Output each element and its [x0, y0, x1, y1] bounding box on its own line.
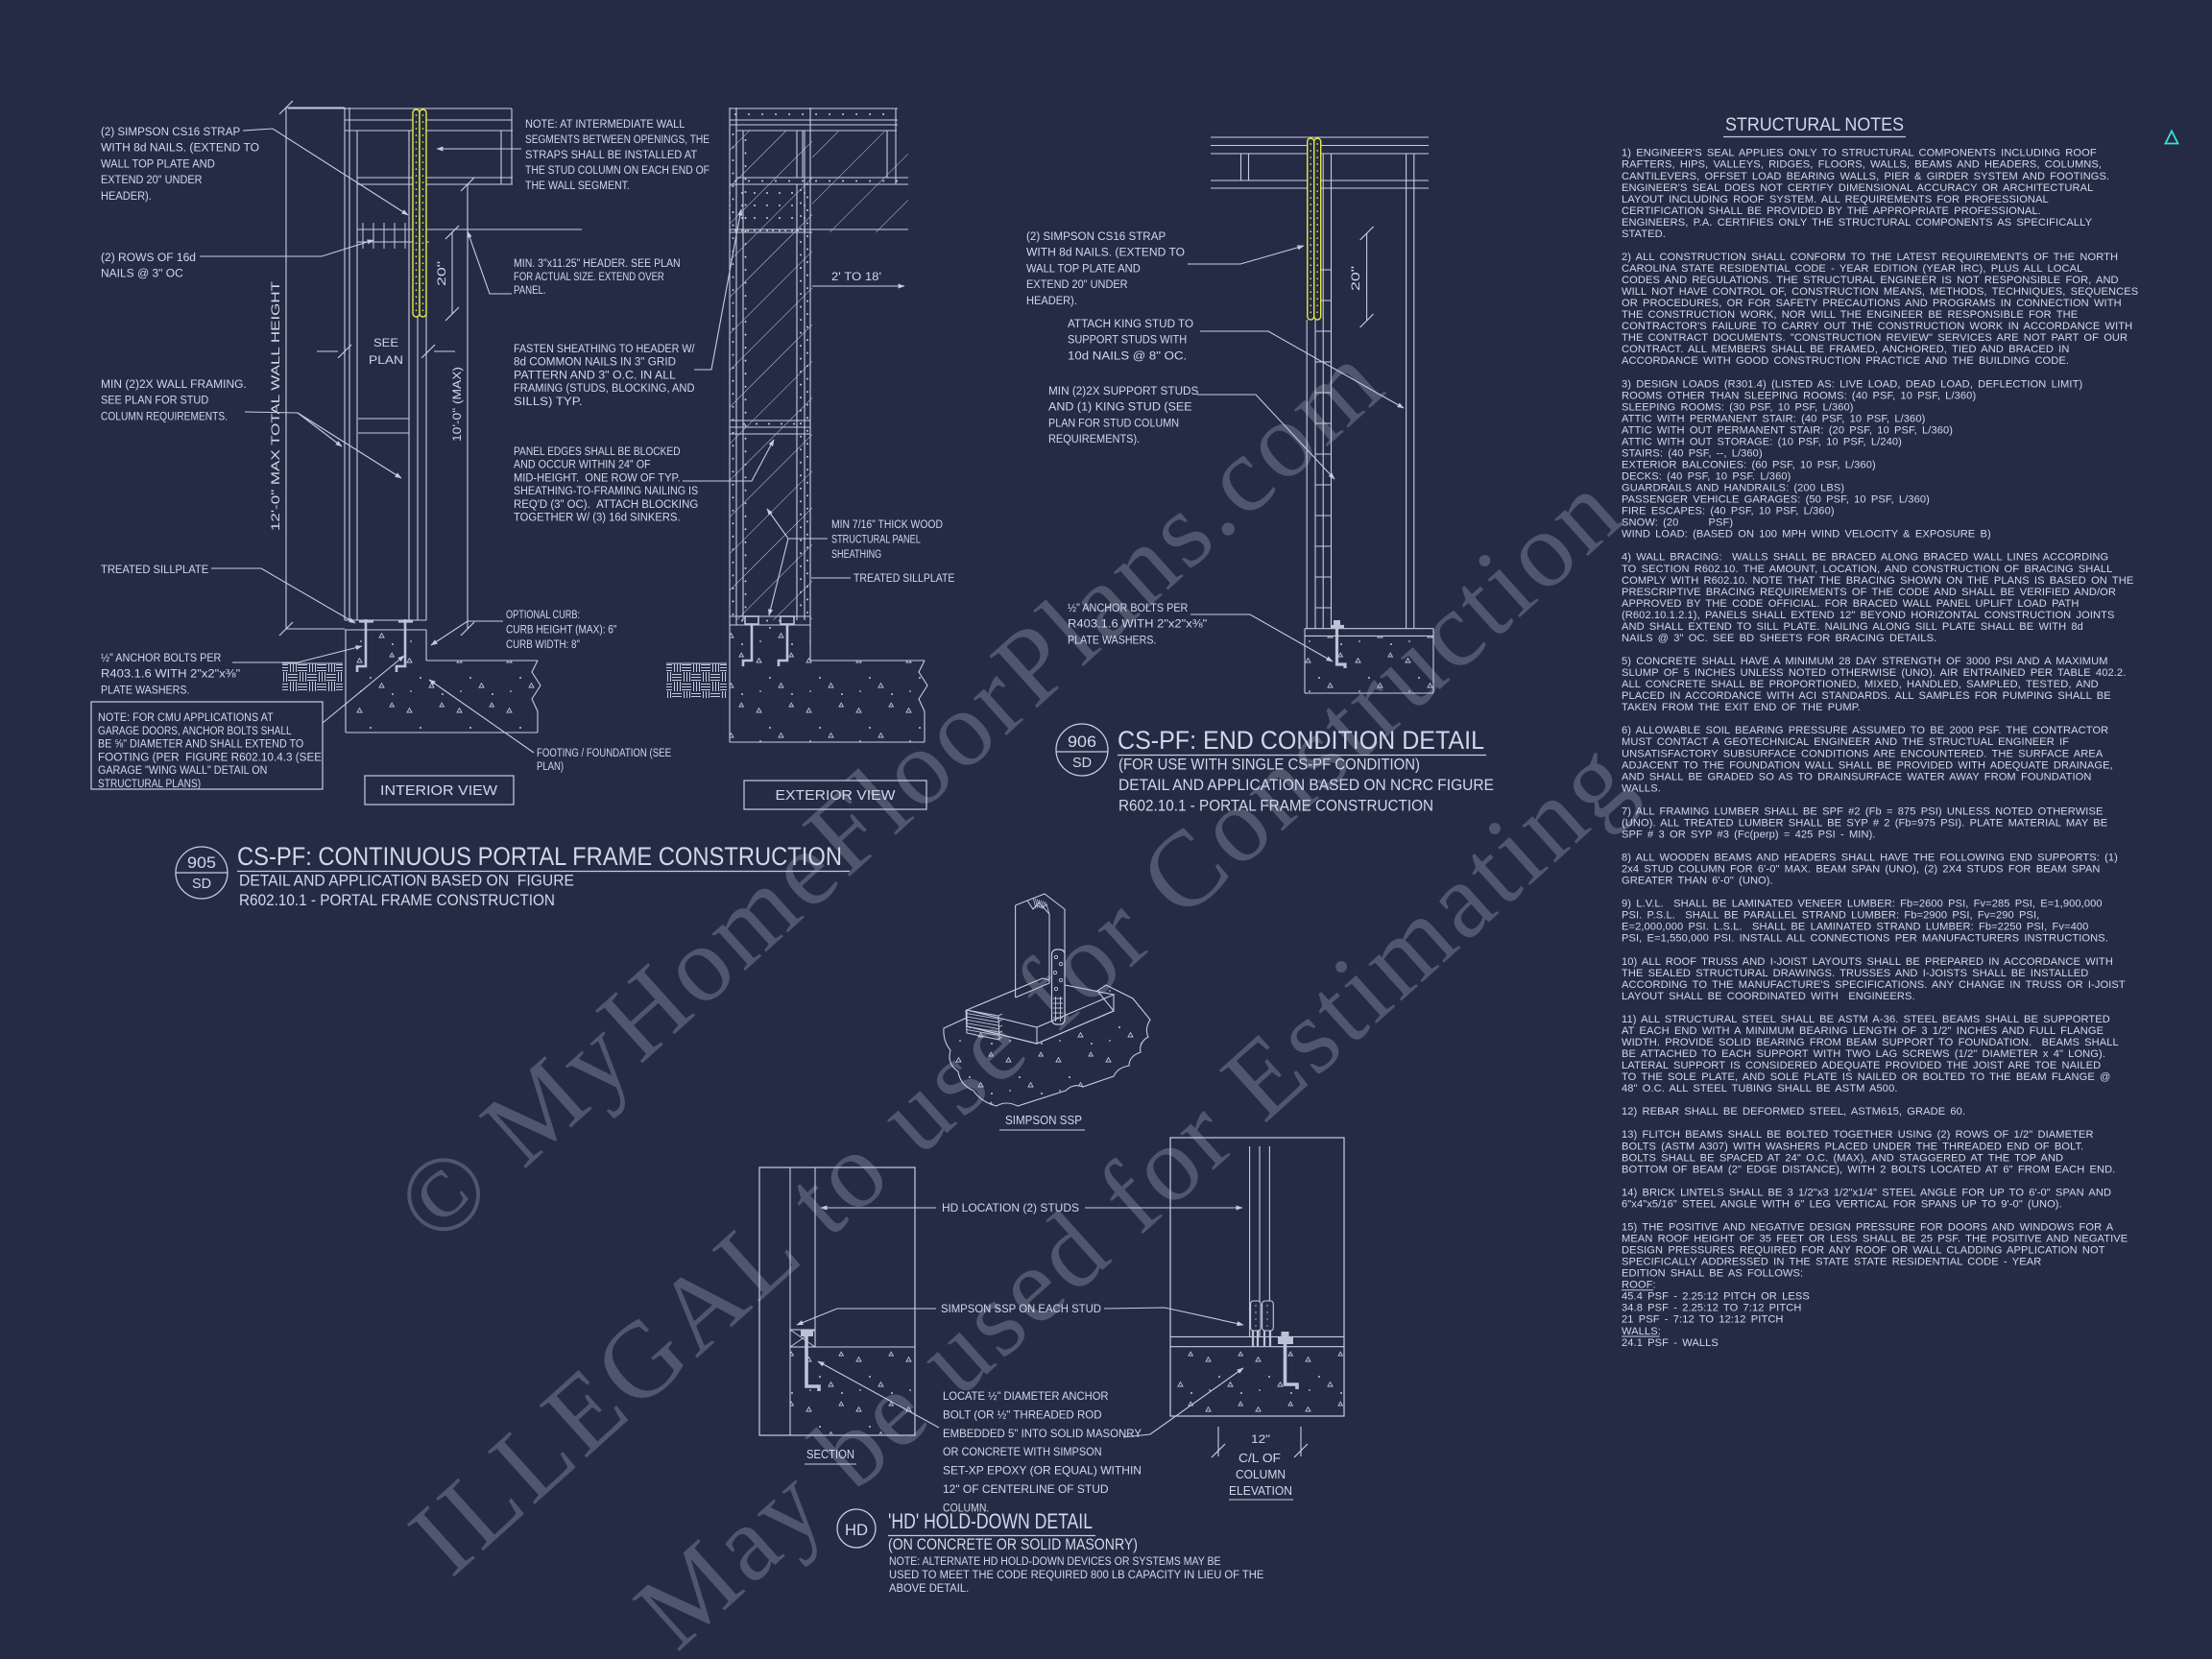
svg-text:EXTERIOR BALCONIES: (60 PSF, 1: EXTERIOR BALCONIES: (60 PSF, 10 PSF, L/3… — [1622, 460, 1876, 471]
svg-text:14) BRICK LINTELS SHALL BE 3 1: 14) BRICK LINTELS SHALL BE 3 1/2"x3 1/2"… — [1622, 1187, 2111, 1198]
svg-text:FOOTING (PER FIGURE R602.10.4: FOOTING (PER FIGURE R602.10.4.3 (SEE — [98, 752, 322, 763]
svg-text:FIRE ESCAPES: (40 PSF, 10 PSF,: FIRE ESCAPES: (40 PSF, 10 PSF, L/360) — [1622, 506, 1835, 517]
svg-text:AND OCCUR WITHIN 24" OF: AND OCCUR WITHIN 24" OF — [514, 460, 651, 471]
svg-text:PASSENGER VEHICLE GARAGES: (50: PASSENGER VEHICLE GARAGES: (50 PSF, 10 P… — [1622, 494, 1930, 506]
svg-text:ROOF:: ROOF: — [1622, 1280, 1656, 1291]
svg-text:PLAN): PLAN) — [537, 761, 564, 773]
svg-text:20": 20" — [435, 261, 448, 286]
svg-text:SILLS) TYP.: SILLS) TYP. — [514, 397, 583, 408]
svg-text:MID-HEIGHT. ONE ROW OF TYP.: MID-HEIGHT. ONE ROW OF TYP. — [514, 472, 681, 484]
svg-text:PANEL EDGES SHALL BE BLOCKED: PANEL EDGES SHALL BE BLOCKED — [514, 446, 681, 458]
svg-text:CERTIFICATION SHALL BE PROVIDE: CERTIFICATION SHALL BE PROVIDED BY THE A… — [1622, 205, 2041, 217]
svg-text:INTERIOR VIEW: INTERIOR VIEW — [380, 782, 498, 799]
svg-text:CONTRACTOR'S FAILURE TO CARRY: CONTRACTOR'S FAILURE TO CARRY OUT THE CO… — [1622, 321, 2132, 332]
svg-text:15) THE POSITIVE AND NEGATIVE: 15) THE POSITIVE AND NEGATIVE DESIGN PRE… — [1622, 1222, 2114, 1234]
svg-text:PSI, E=1,550,000 PSI. INSTALL: PSI, E=1,550,000 PSI. INSTALL ALL CONNEC… — [1622, 933, 2108, 945]
svg-text:PLATE WASHERS.: PLATE WASHERS. — [101, 685, 189, 696]
svg-text:NOTE: AT INTERMEDIATE WALL: NOTE: AT INTERMEDIATE WALL — [525, 119, 685, 131]
svg-text:LAYOUT INCLUDING ROOF SYSTEM.: LAYOUT INCLUDING ROOF SYSTEM. ALL REQUIR… — [1622, 194, 2049, 205]
svg-text:COMPLY WITH R602.10. NOTE THAT: COMPLY WITH R602.10. NOTE THAT THE BRACI… — [1622, 575, 2133, 587]
svg-text:STRUCTURAL NOTES: STRUCTURAL NOTES — [1725, 115, 1904, 135]
svg-text:R602.10.1 - PORTAL FRAME CONST: R602.10.1 - PORTAL FRAME CONSTRUCTION — [1118, 798, 1433, 815]
svg-text:FOOTING / FOUNDATION (SEE: FOOTING / FOUNDATION (SEE — [537, 748, 671, 759]
svg-text:TREATED SILLPLATE: TREATED SILLPLATE — [101, 565, 209, 576]
svg-text:EXTERIOR VIEW: EXTERIOR VIEW — [776, 787, 897, 804]
svg-text:COLUMN: COLUMN — [1236, 1468, 1286, 1481]
svg-text:ATTIC WITH PERMANENT STAIR: (4: ATTIC WITH PERMANENT STAIR: (40 PSF, 10 … — [1622, 413, 1925, 424]
svg-text:ENGINEER'S SEAL DOES NOT CERTI: ENGINEER'S SEAL DOES NOT CERTIFY DIMENSI… — [1622, 182, 2093, 194]
svg-text:R403.1.6 WITH 2"x2"x⅜": R403.1.6 WITH 2"x2"x⅜" — [1068, 619, 1207, 631]
svg-text:HD: HD — [845, 1521, 868, 1539]
svg-text:LATERAL SUPPORT IS CONSIDERED: LATERAL SUPPORT IS CONSIDERED ADEQUATE P… — [1622, 1060, 2101, 1071]
svg-text:ENGINEERS, P.A. CERTIFIES ONLY: ENGINEERS, P.A. CERTIFIES ONLY THE STRUC… — [1622, 217, 2093, 228]
svg-text:ACCORDING TO THE MANUFACTURE'S: ACCORDING TO THE MANUFACTURE'S SPECIFICA… — [1622, 979, 2126, 991]
svg-text:STRUCTURAL PLANS): STRUCTURAL PLANS) — [98, 779, 201, 790]
svg-text:LAYOUT SHALL BE COORDINATED WI: LAYOUT SHALL BE COORDINATED WITH ENGINEE… — [1622, 991, 1915, 1002]
svg-text:(2) ROWS OF 16d: (2) ROWS OF 16d — [101, 252, 196, 264]
svg-text:SECTION: SECTION — [806, 1447, 854, 1461]
svg-text:SD: SD — [1072, 755, 1092, 771]
svg-text:20": 20" — [1349, 266, 1362, 291]
svg-text:(2) SIMPSON CS16 STRAP: (2) SIMPSON CS16 STRAP — [1026, 231, 1166, 243]
svg-text:PLATE WASHERS.: PLATE WASHERS. — [1068, 635, 1156, 646]
svg-text:TAKEN FROM THE EXIT END OF THE: TAKEN FROM THE EXIT END OF THE PUMP. — [1622, 702, 1861, 713]
svg-text:SEE PLAN FOR STUD: SEE PLAN FOR STUD — [101, 396, 208, 407]
svg-text:10'-0" (MAX): 10'-0" (MAX) — [450, 367, 464, 442]
svg-text:MIN (2)2X SUPPORT STUDS: MIN (2)2X SUPPORT STUDS — [1048, 386, 1199, 397]
svg-text:12": 12" — [1251, 1432, 1270, 1446]
svg-text:SIMPSON SSP ON EACH STUD: SIMPSON SSP ON EACH STUD — [941, 1302, 1101, 1315]
svg-text:BE ⅝" DIAMETER AND SHALL EXTEN: BE ⅝" DIAMETER AND SHALL EXTEND TO — [98, 739, 303, 751]
svg-text:PLACED IN ACCORDANCE WITH ACI: PLACED IN ACCORDANCE WITH ACI STANDARDS.… — [1622, 690, 2111, 702]
svg-text:REQ'D (3" OC). ATTACH BLOCKIN: REQ'D (3" OC). ATTACH BLOCKING — [514, 499, 698, 511]
svg-text:NAILS @ 3" OC: NAILS @ 3" OC — [101, 269, 183, 280]
svg-text:ATTACH KING STUD TO: ATTACH KING STUD TO — [1068, 319, 1193, 330]
svg-text:7) ALL FRAMING LUMBER SHALL BE: 7) ALL FRAMING LUMBER SHALL BE SPF #2 (F… — [1622, 805, 2103, 817]
svg-text:APPROVED BY THE CODE OFFICIAL.: APPROVED BY THE CODE OFFICIAL. FOR BRACE… — [1622, 598, 2079, 610]
svg-text:SEGMENTS BETWEEN OPENINGS, THE: SEGMENTS BETWEEN OPENINGS, THE — [525, 134, 709, 146]
svg-text:BOLTS (ASTM A307) WITH WASHERS: BOLTS (ASTM A307) WITH WASHERS PLACED UN… — [1622, 1141, 2083, 1152]
svg-text:FASTEN SHEATHING TO HEADER W/: FASTEN SHEATHING TO HEADER W/ — [514, 344, 695, 355]
svg-text:GARAGE DOORS, ANCHOR BOLTS SHA: GARAGE DOORS, ANCHOR BOLTS SHALL — [98, 726, 292, 737]
svg-text:AND (1) KING STUD (SEE: AND (1) KING STUD (SEE — [1048, 402, 1192, 414]
svg-text:THE STUD COLUMN ON EACH END OF: THE STUD COLUMN ON EACH END OF — [525, 165, 709, 177]
svg-text:SLUMP OF 5 INCHES UNLESS NOTED: SLUMP OF 5 INCHES UNLESS NOTED OTHERWISE… — [1622, 667, 2126, 679]
svg-text:12) REBAR SHALL BE DEFORMED ST: 12) REBAR SHALL BE DEFORMED STEEL, ASTM6… — [1622, 1106, 1965, 1118]
svg-text:24.1 PSF - WALLS: 24.1 PSF - WALLS — [1622, 1337, 1719, 1349]
svg-text:OPTIONAL CURB:: OPTIONAL CURB: — [506, 610, 580, 621]
svg-text:THE SEALED STRUCTURAL DRAWINGS: THE SEALED STRUCTURAL DRAWINGS. TRUSSES … — [1622, 968, 2088, 979]
svg-text:HEADER).: HEADER). — [1026, 296, 1077, 307]
svg-text:C/L OF: C/L OF — [1238, 1452, 1281, 1465]
svg-text:BE ATTACHED TO EACH SUPPORT WI: BE ATTACHED TO EACH SUPPORT WITH TWO LAG… — [1622, 1048, 2105, 1060]
svg-text:SEE: SEE — [373, 336, 398, 349]
svg-text:CANTILEVERS, OFFSET LOAD BEARI: CANTILEVERS, OFFSET LOAD BEARING WALLS, … — [1622, 171, 2109, 182]
svg-text:BOTTOM OF BEAM (2" EDGE DISTAN: BOTTOM OF BEAM (2" EDGE DISTANCE), WITH … — [1622, 1164, 2115, 1175]
svg-text:SLEEPING ROOMS: (30 PSF, 10 PS: SLEEPING ROOMS: (30 PSF, 10 PSF, L/360) — [1622, 401, 1854, 413]
svg-text:AT EACH END WITH A MINIMUM BEA: AT EACH END WITH A MINIMUM BEARING LENGT… — [1622, 1025, 2104, 1037]
svg-text:905: 905 — [187, 854, 216, 872]
svg-text:8d COMMON NAILS IN 3" GRID: 8d COMMON NAILS IN 3" GRID — [514, 357, 676, 369]
svg-text:WALL TOP PLATE AND: WALL TOP PLATE AND — [101, 158, 215, 170]
svg-text:GARAGE "WING WALL" DETAIL ON: GARAGE "WING WALL" DETAIL ON — [98, 765, 267, 777]
svg-text:MIN. 3"x11.25" HEADER. SEE PLA: MIN. 3"x11.25" HEADER. SEE PLAN — [514, 258, 681, 270]
svg-text:1) ENGINEER'S SEAL APPLIES ONL: 1) ENGINEER'S SEAL APPLIES ONLY TO STRUC… — [1622, 148, 2097, 159]
svg-text:12" OF CENTERLINE OF STUD: 12" OF CENTERLINE OF STUD — [943, 1482, 1109, 1496]
svg-text:OR CONCRETE WITH SIMPSON: OR CONCRETE WITH SIMPSON — [943, 1445, 1102, 1458]
svg-text:11) ALL STRUCTURAL STEEL SHALL: 11) ALL STRUCTURAL STEEL SHALL BE ASTM A… — [1622, 1014, 2110, 1025]
svg-text:'HD' HOLD-DOWN DETAIL: 'HD' HOLD-DOWN DETAIL — [888, 1509, 1093, 1533]
svg-text:NAILS @ 3" OC. SEE BD SHEETS F: NAILS @ 3" OC. SEE BD SHEETS FOR BRACING… — [1622, 633, 1936, 644]
svg-text:TREATED SILLPLATE: TREATED SILLPLATE — [854, 573, 955, 585]
svg-text:ATTIC WITH OUT PERMANENT STAIR: ATTIC WITH OUT PERMANENT STAIR: (20 PSF,… — [1622, 424, 1953, 436]
svg-text:6) ALLOWABLE SOIL BEARING PRES: 6) ALLOWABLE SOIL BEARING PRESSURE ASSUM… — [1622, 725, 2108, 736]
svg-text:MIN (2)2X WALL FRAMING.: MIN (2)2X WALL FRAMING. — [101, 379, 247, 391]
svg-text:WITH 8d NAILS. (EXTEND TO: WITH 8d NAILS. (EXTEND TO — [101, 143, 259, 155]
svg-text:CS-PF: CONTINUOUS PORTAL FRAME: CS-PF: CONTINUOUS PORTAL FRAME CONSTRUCT… — [237, 842, 842, 871]
svg-text:STRAPS SHALL BE INSTALLED AT: STRAPS SHALL BE INSTALLED AT — [525, 150, 697, 161]
svg-text:ADJACENT TO THE FOUNDATION WAL: ADJACENT TO THE FOUNDATION WALL SHALL BE… — [1622, 759, 2113, 771]
svg-text:DESIGN PRESSURES REQUIRED FOR: DESIGN PRESSURES REQUIRED FOR ANY ROOF O… — [1622, 1245, 2105, 1257]
svg-text:CS-PF: END CONDITION DETAIL: CS-PF: END CONDITION DETAIL — [1118, 726, 1484, 755]
svg-text:WALL TOP PLATE AND: WALL TOP PLATE AND — [1026, 263, 1141, 275]
svg-text:R403.1.6 WITH 2"x2"x⅜": R403.1.6 WITH 2"x2"x⅜" — [101, 669, 240, 681]
svg-text:(2) SIMPSON CS16 STRAP: (2) SIMPSON CS16 STRAP — [101, 127, 241, 138]
svg-text:UNSATISFACTORY SUBSURFACE COND: UNSATISFACTORY SUBSURFACE CONDITIONS ARE… — [1622, 748, 2104, 759]
svg-text:(ON CONCRETE OR SOLID MASONRY): (ON CONCRETE OR SOLID MASONRY) — [888, 1536, 1138, 1553]
svg-text:THE CONSTRUCTION WORK, NOR WIL: THE CONSTRUCTION WORK, NOR WILL THE ENGI… — [1622, 309, 2078, 321]
svg-text:SHEATHING: SHEATHING — [831, 549, 881, 561]
svg-text:10) ALL ROOF TRUSS AND I-JOIST: 10) ALL ROOF TRUSS AND I-JOIST LAYOUTS S… — [1622, 956, 2113, 968]
svg-text:(R602.10.1.2.1), PANELS SHALL: (R602.10.1.2.1), PANELS SHALL EXTEND 12"… — [1622, 610, 2115, 621]
svg-text:THE CONTRACT DOCUMENTS. "CONST: THE CONTRACT DOCUMENTS. "CONSTRUCTION RE… — [1622, 332, 2128, 344]
svg-text:WIDTH. PROVIDE SOLID BEARING F: WIDTH. PROVIDE SOLID BEARING FROM BEAM S… — [1622, 1037, 2119, 1048]
svg-text:13) FLITCH BEAMS SHALL BE BOLT: 13) FLITCH BEAMS SHALL BE BOLTED TOGETHE… — [1622, 1129, 2094, 1141]
svg-text:8) ALL WOODEN BEAMS AND HEADER: 8) ALL WOODEN BEAMS AND HEADERS SHALL HA… — [1622, 853, 2118, 864]
svg-text:CAROLINA STATE RESIDENTIAL COD: CAROLINA STATE RESIDENTIAL CODE - YEAR E… — [1622, 263, 2082, 275]
svg-text:6"x4"x5/16" STEEL ANGLE WITH 6: 6"x4"x5/16" STEEL ANGLE WITH 6" LEG VERT… — [1622, 1198, 2062, 1210]
svg-text:LOCATE ½" DIAMETER ANCHOR: LOCATE ½" DIAMETER ANCHOR — [943, 1389, 1109, 1403]
svg-text:PSI. P.S.L. SHALL BE PARALLEL: PSI. P.S.L. SHALL BE PARALLEL STRAND LUM… — [1622, 910, 2039, 922]
svg-text:SPECIFICALLY ADDRESSED IN THE: SPECIFICALLY ADDRESSED IN THE STATE STAT… — [1622, 1257, 2041, 1268]
svg-text:3) DESIGN LOADS (R301.4) (LIST: 3) DESIGN LOADS (R301.4) (LISTED AS: LIV… — [1622, 378, 2082, 390]
svg-text:GUARDRAILS AND HANDRAILS: (200: GUARDRAILS AND HANDRAILS: (200 LBS) — [1622, 483, 1844, 494]
svg-text:DETAIL AND APPLICATION BASED O: DETAIL AND APPLICATION BASED ON FIGURE — [239, 873, 574, 890]
svg-text:45.4 PSF - 2.25:12 PITCH OR LE: 45.4 PSF - 2.25:12 PITCH OR LESS — [1622, 1291, 1810, 1303]
svg-text:EDITION SHALL BE AS FOLLOWS:: EDITION SHALL BE AS FOLLOWS: — [1622, 1268, 1803, 1280]
svg-text:WALLS:: WALLS: — [1622, 1326, 1661, 1337]
svg-text:REQUIREMENTS).: REQUIREMENTS). — [1048, 434, 1140, 445]
svg-text:EXTEND 20" UNDER: EXTEND 20" UNDER — [1026, 279, 1128, 291]
svg-text:PLAN: PLAN — [369, 353, 403, 367]
svg-text:PRESCRIPTIVE BRACING REQUIREME: PRESCRIPTIVE BRACING REQUIREMENTS OF THE… — [1622, 587, 2116, 598]
svg-text:WALLS.: WALLS. — [1622, 782, 1661, 794]
svg-text:34.8 PSF - 2.25:12 TO 7:12 PIT: 34.8 PSF - 2.25:12 TO 7:12 PITCH — [1622, 1303, 1801, 1314]
svg-text:ELEVATION: ELEVATION — [1229, 1483, 1292, 1498]
svg-text:WILL NOT HAVE CONTROL OF, CONS: WILL NOT HAVE CONTROL OF, CONSTRUCTION M… — [1622, 286, 2138, 298]
svg-text:OR PROCEDURES, OR FOR SAFETY P: OR PROCEDURES, OR FOR SAFETY PRECAUTIONS… — [1622, 298, 2122, 309]
svg-text:AND SHALL BE GRADED SO AS TO D: AND SHALL BE GRADED SO AS TO DRAINSURFAC… — [1622, 771, 2091, 782]
svg-text:2) ALL CONSTRUCTION SHALL CONF: 2) ALL CONSTRUCTION SHALL CONFORM TO THE… — [1622, 252, 2118, 263]
svg-text:MUST CONTACT A GEOTECHNICAL EN: MUST CONTACT A GEOTECHNICAL ENGINEER AND… — [1622, 736, 2069, 748]
svg-text:STRUCTURAL PANEL: STRUCTURAL PANEL — [831, 535, 921, 546]
svg-text:CURB WIDTH: 8": CURB WIDTH: 8" — [506, 639, 580, 651]
svg-text:ROOMS OTHER THAN SLEEPING ROOM: ROOMS OTHER THAN SLEEPING ROOMS: (40 PSF… — [1622, 390, 1976, 401]
svg-text:5) CONCRETE SHALL HAVE A MINIM: 5) CONCRETE SHALL HAVE A MINIMUM 28 DAY … — [1622, 656, 2108, 667]
svg-text:DETAIL AND APPLICATION BASED O: DETAIL AND APPLICATION BASED ON NCRC FIG… — [1118, 777, 1494, 794]
svg-text:½" ANCHOR BOLTS PER: ½" ANCHOR BOLTS PER — [101, 653, 221, 664]
svg-text:ABOVE DETAIL.: ABOVE DETAIL. — [889, 1583, 969, 1595]
svg-text:STATED.: STATED. — [1622, 228, 1666, 240]
svg-text:(FOR USE WITH SINGLE CS-PF CON: (FOR USE WITH SINGLE CS-PF CONDITION) — [1118, 757, 1420, 774]
svg-text:BOLTS SHALL BE SPACED AT 24" O: BOLTS SHALL BE SPACED AT 24" O.C. (MAX),… — [1622, 1152, 2063, 1164]
svg-text:4) WALL BRACING: WALLS SHALL: 4) WALL BRACING: WALLS SHALL BE BRACED A… — [1622, 552, 2108, 564]
svg-text:906: 906 — [1068, 733, 1096, 751]
svg-text:STAIRS: (40 PSF, --, L/360): STAIRS: (40 PSF, --, L/360) — [1622, 448, 1763, 460]
svg-text:TO THE SOLE PLATE, AND SOLE PL: TO THE SOLE PLATE, AND SOLE PLATE IS NAI… — [1622, 1071, 2110, 1083]
svg-text:SD: SD — [192, 876, 211, 892]
svg-text:SET-XP EPOXY (OR EQUAL) WITHIN: SET-XP EPOXY (OR EQUAL) WITHIN — [943, 1464, 1142, 1478]
svg-text:48" O.C. ALL STEEL TUBING SHAL: 48" O.C. ALL STEEL TUBING SHALL BE ASTM … — [1622, 1083, 1898, 1094]
svg-text:SUPPORT STUDS WITH: SUPPORT STUDS WITH — [1068, 335, 1187, 347]
svg-text:FOR ACTUAL SIZE. EXTEND OVER: FOR ACTUAL SIZE. EXTEND OVER — [514, 272, 664, 283]
svg-text:FRAMING (STUDS, BLOCKING, AND: FRAMING (STUDS, BLOCKING, AND — [514, 383, 695, 395]
svg-text:R602.10.1 - PORTAL FRAME CONST: R602.10.1 - PORTAL FRAME CONSTRUCTION — [239, 892, 555, 909]
svg-text:(UNO). ALL TREATED LUMBER SHAL: (UNO). ALL TREATED LUMBER SHALL BE SYP #… — [1622, 817, 2107, 829]
svg-text:RAFTERS, HIPS, VALLEYS, RIDGES: RAFTERS, HIPS, VALLEYS, RIDGES, FLOORS, … — [1622, 159, 2102, 171]
svg-text:½" ANCHOR BOLTS PER: ½" ANCHOR BOLTS PER — [1068, 603, 1188, 614]
svg-text:2' TO 18': 2' TO 18' — [831, 270, 881, 283]
svg-text:PATTERN AND 3" O.C. IN ALL: PATTERN AND 3" O.C. IN ALL — [514, 370, 677, 381]
svg-text:THE WALL SEGMENT.: THE WALL SEGMENT. — [525, 180, 630, 192]
svg-text:EXTEND 20" UNDER: EXTEND 20" UNDER — [101, 175, 203, 186]
svg-text:TOGETHER W/ (3) 16d SINKERS.: TOGETHER W/ (3) 16d SINKERS. — [514, 513, 681, 524]
svg-text:SIMPSON SSP: SIMPSON SSP — [1005, 1114, 1082, 1127]
svg-text:ACCORDANCE WITH GOOD CONSTRUCT: ACCORDANCE WITH GOOD CONSTRUCTION PRACTI… — [1622, 355, 2069, 367]
svg-text:SHEATHING-TO-FRAMING NAILING I: SHEATHING-TO-FRAMING NAILING IS — [514, 486, 699, 497]
svg-text:GREATER THAN 6'-0" (UNO).: GREATER THAN 6'-0" (UNO). — [1622, 876, 1773, 887]
svg-text:ATTIC WITH OUT STORAGE: (10 PS: ATTIC WITH OUT STORAGE: (10 PSF, 10 PSF,… — [1622, 436, 1902, 447]
svg-text:9) L.V.L. SHALL BE LAMINATED: 9) L.V.L. SHALL BE LAMINATED VENEER LUMB… — [1622, 899, 2103, 910]
svg-text:CURB HEIGHT (MAX): 6": CURB HEIGHT (MAX): 6" — [506, 625, 617, 637]
svg-text:PANEL.: PANEL. — [514, 285, 546, 297]
svg-text:21 PSF - 7:12 TO 12:12 PITCH: 21 PSF - 7:12 TO 12:12 PITCH — [1622, 1314, 1784, 1326]
svg-text:AND SHALL EXTEND TO SILL PLATE: AND SHALL EXTEND TO SILL PLATE. NAILING … — [1622, 621, 2083, 633]
svg-text:2x4 STUD COLUMN FOR 6'-0" MAX.: 2x4 STUD COLUMN FOR 6'-0" MAX. BEAM SPAN… — [1622, 864, 2101, 876]
svg-text:SPF # 3 OR SYP #3 (Fc(perp) =: SPF # 3 OR SYP #3 (Fc(perp) = 425 PSI - … — [1622, 829, 1876, 841]
svg-text:WIND LOAD: (BASED ON 100 MPH W: WIND LOAD: (BASED ON 100 MPH WIND VELOCI… — [1622, 529, 1991, 541]
svg-text:COLUMN REQUIREMENTS.: COLUMN REQUIREMENTS. — [101, 411, 228, 422]
svg-text:12'-0" MAX TOTAL WALL HEIGHT: 12'-0" MAX TOTAL WALL HEIGHT — [269, 280, 282, 531]
svg-text:10d NAILS @ 8" OC.: 10d NAILS @ 8" OC. — [1068, 350, 1187, 362]
svg-text:MIN 7/16" THICK WOOD: MIN 7/16" THICK WOOD — [831, 519, 943, 531]
svg-text:BOLT (OR ½" THREADED ROD: BOLT (OR ½" THREADED ROD — [943, 1407, 1102, 1421]
svg-text:CONTRACT. ALL MEMBERS SHALL BE: CONTRACT. ALL MEMBERS SHALL BE FRAMED, A… — [1622, 344, 2069, 355]
svg-text:HD LOCATION (2) STUDS: HD LOCATION (2) STUDS — [942, 1201, 1079, 1214]
svg-text:EMBEDDED 5" INTO SOLID MASONRY: EMBEDDED 5" INTO SOLID MASONRY — [943, 1427, 1142, 1440]
svg-text:E=2,000,000 PSI. L.S.L. SHALL: E=2,000,000 PSI. L.S.L. SHALL BE LAMINAT… — [1622, 922, 2088, 933]
svg-text:PLAN FOR STUD COLUMN: PLAN FOR STUD COLUMN — [1048, 418, 1179, 429]
svg-text:NOTE: FOR CMU APPLICATIONS AT: NOTE: FOR CMU APPLICATIONS AT — [98, 712, 274, 724]
svg-text:USED TO MEET THE CODE REQUIRED: USED TO MEET THE CODE REQUIRED 800 LB CA… — [889, 1570, 1264, 1581]
svg-text:DECKS: (40 PSF, 10 PSF. L/360): DECKS: (40 PSF, 10 PSF. L/360) — [1622, 471, 1791, 483]
svg-text:ALL CONCRETE SHALL BE PROPORTI: ALL CONCRETE SHALL BE PROPORTIONED, MIXE… — [1622, 679, 2099, 690]
svg-text:NOTE: ALTERNATE HD HOLD-DOWN D: NOTE: ALTERNATE HD HOLD-DOWN DEVICES OR … — [889, 1556, 1221, 1568]
svg-text:HEADER).: HEADER). — [101, 191, 152, 203]
svg-text:TO SECTION R602.10. THE AMOUNT: TO SECTION R602.10. THE AMOUNT, LOCATION… — [1622, 564, 2112, 575]
svg-text:SNOW: (20 PSF): SNOW: (20 PSF) — [1622, 517, 1733, 529]
svg-text:CODES AND REGULATIONS. THE STR: CODES AND REGULATIONS. THE STRUCTURAL EN… — [1622, 275, 2119, 286]
svg-text:WITH 8d NAILS. (EXTEND TO: WITH 8d NAILS. (EXTEND TO — [1026, 248, 1185, 259]
svg-text:MEAN ROOF HEIGHT OF 35 FEET OR: MEAN ROOF HEIGHT OF 35 FEET OR LESS SHAL… — [1622, 1234, 2128, 1245]
